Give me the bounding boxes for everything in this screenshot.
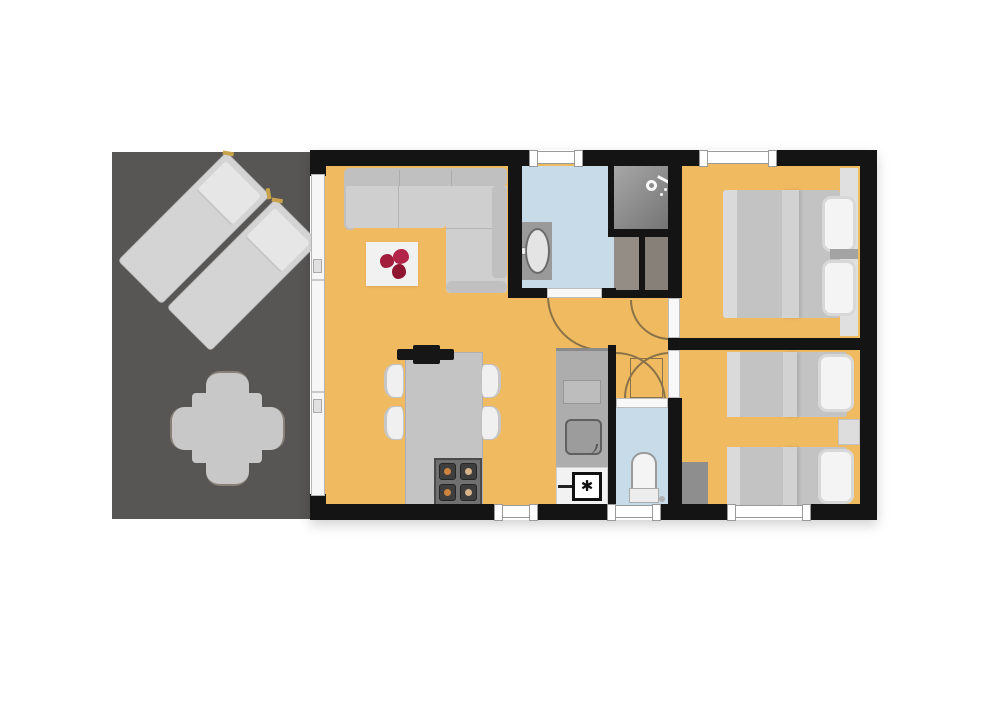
lounger-frame-tick (272, 197, 284, 203)
wall-right (860, 150, 877, 520)
wall-closet-divider (639, 237, 645, 290)
toilet-window (608, 505, 660, 518)
sofa-seam (446, 228, 492, 229)
toilet-door-leaf (630, 358, 663, 398)
outdoor-chair (206, 462, 249, 486)
sofa-chaise-back (492, 186, 507, 278)
wall-bathroom-bedroom (668, 150, 682, 298)
outdoor-chair (261, 407, 285, 450)
bar-chair (481, 364, 501, 398)
wardrobe (682, 462, 708, 506)
shower-spray-icon (660, 193, 663, 196)
glass-mullion (312, 391, 324, 393)
door-handle (313, 399, 322, 413)
headboard-console (830, 249, 858, 259)
sofa-seam (398, 186, 399, 228)
sliding-glass-wall (311, 174, 325, 496)
bar-chair (384, 364, 404, 398)
wall-bottom (660, 504, 728, 520)
kitchen-sink (565, 419, 602, 455)
closet (614, 237, 639, 290)
kitchen-window (495, 505, 537, 518)
wall-bottom (310, 504, 495, 520)
pillow (818, 354, 854, 412)
wall-corner-left-top (310, 150, 326, 176)
stove (434, 458, 482, 506)
kitchen-cabinet (563, 380, 601, 404)
sofa-backrest (345, 168, 507, 186)
toilet-drain (659, 496, 665, 502)
bathroom-door (547, 288, 602, 298)
glass-mullion (312, 279, 324, 281)
outdoor-dining-set (170, 371, 284, 486)
pillow (822, 260, 856, 316)
wall-corner-left-bottom (310, 494, 326, 520)
wall-toilet-left (608, 345, 616, 506)
sofa-seam (451, 170, 452, 186)
bed-foot-band (723, 190, 737, 318)
shower-spray-icon (664, 188, 667, 191)
nightstand (838, 419, 860, 445)
bedroom-twin-door (668, 350, 680, 398)
duvet-crease (782, 190, 799, 318)
boiler-line (558, 485, 572, 488)
boiler-symbol: ✱ (572, 472, 602, 501)
shower-head-icon (646, 180, 657, 191)
pillow (822, 196, 856, 252)
wall-bedroom-divider (668, 338, 860, 350)
closet (645, 237, 668, 290)
wall-toilet-right (668, 398, 682, 506)
burner (439, 463, 456, 480)
boiler-asterisk: ✱ (581, 479, 594, 494)
wall-shower-left (608, 164, 614, 229)
bedroom-double-window (700, 151, 776, 164)
bedroom-double-door (668, 298, 680, 338)
wall-top (310, 150, 530, 166)
bed-foot-band (727, 447, 740, 506)
toilet-tank (629, 488, 659, 503)
bathroom-window (530, 151, 582, 164)
outdoor-table (192, 393, 262, 463)
duvet-crease (783, 447, 797, 506)
sofa-seam (399, 170, 400, 186)
sofa-seat (346, 186, 446, 228)
wall-top (582, 150, 700, 166)
bar-chair (384, 406, 404, 440)
burner (460, 484, 477, 501)
lounger-frame-tick (223, 150, 235, 156)
bedroom-twin-window (728, 505, 810, 518)
toilet-door (616, 398, 668, 408)
toilet-bowl (631, 452, 657, 492)
wall-living-bathroom (508, 160, 522, 296)
burner (439, 484, 456, 501)
bed-foot-band (727, 352, 740, 417)
pillow (818, 449, 854, 504)
duvet-crease (783, 352, 797, 417)
sofa-chaise-end (446, 281, 507, 293)
floor-plan-canvas: ✱ (0, 0, 1000, 707)
wall-bathroom-bottom (508, 288, 547, 298)
door-handle (313, 259, 322, 273)
bar-chair (481, 406, 501, 440)
tv-center (413, 345, 440, 364)
wall-bottom (537, 504, 608, 520)
outdoor-chair (206, 371, 249, 395)
outdoor-chair (170, 407, 194, 450)
burner (460, 463, 477, 480)
bathroom-sink-basin (525, 228, 550, 274)
